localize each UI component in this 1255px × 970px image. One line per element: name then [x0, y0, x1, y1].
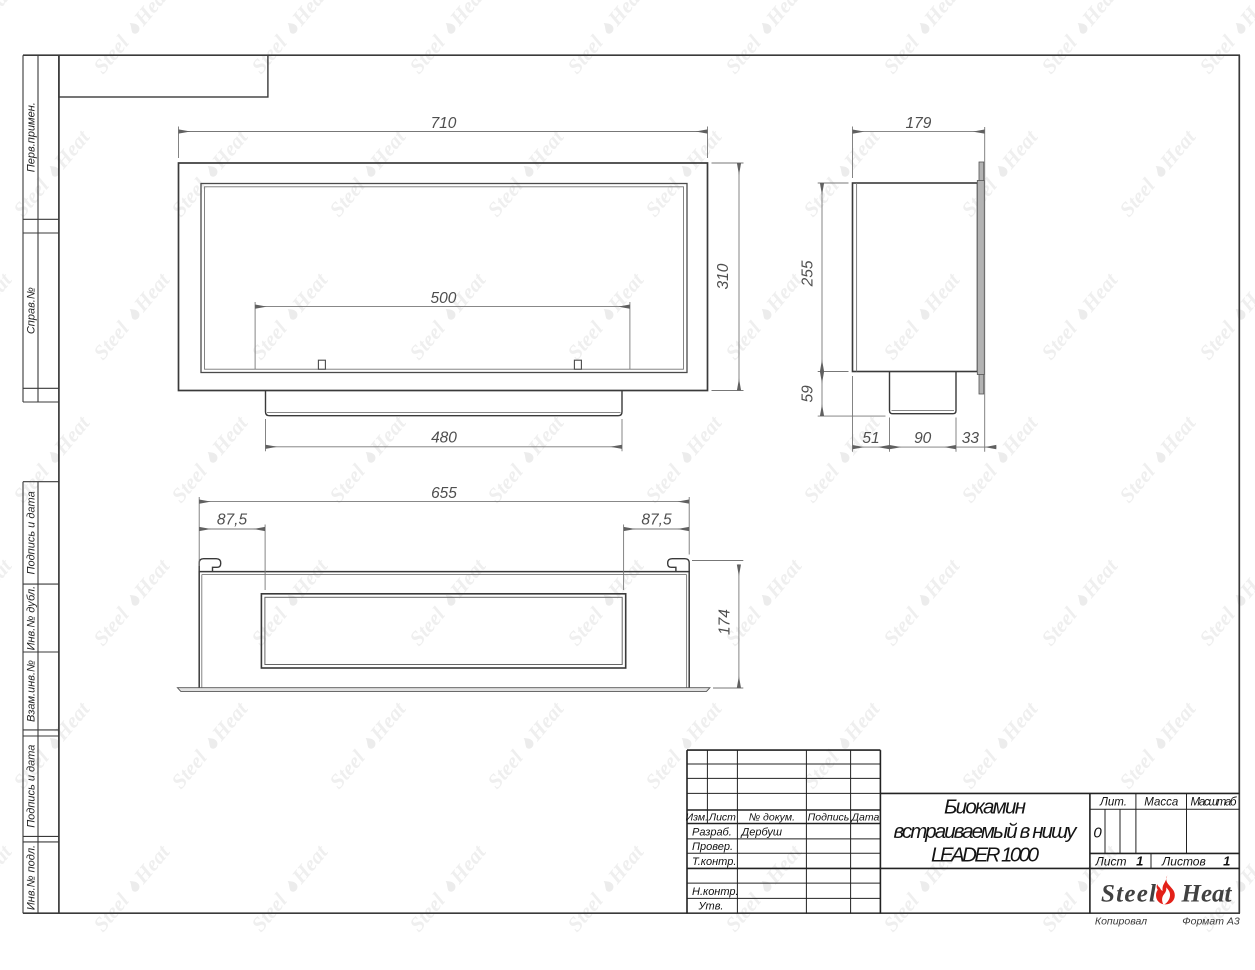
svg-text:87,5: 87,5	[641, 512, 672, 529]
svg-text:Heat: Heat	[1181, 881, 1233, 908]
svg-text:Дата: Дата	[851, 812, 880, 824]
svg-text:59: 59	[800, 385, 817, 403]
svg-text:Лист: Лист	[1095, 854, 1127, 868]
svg-text:Изм.: Изм.	[686, 812, 708, 824]
svg-text:Листов: Листов	[1161, 854, 1206, 868]
svg-text:Биокамин: Биокамин	[944, 796, 1026, 819]
svg-text:1: 1	[1223, 854, 1230, 869]
svg-text:Масса: Масса	[1144, 797, 1178, 809]
svg-text:255: 255	[800, 260, 817, 287]
svg-text:Подпись и дата: Подпись и дата	[26, 745, 38, 828]
svg-text:Подпись: Подпись	[808, 812, 850, 824]
svg-text:Перв.примен.: Перв.примен.	[26, 102, 38, 172]
svg-text:Н.контр.: Н.контр.	[692, 886, 739, 898]
svg-text:Формат А3: Формат А3	[1182, 916, 1240, 928]
svg-text:Лит.: Лит.	[1099, 797, 1127, 809]
svg-text:Масштаб: Масштаб	[1191, 797, 1238, 809]
svg-text:Провер.: Провер.	[692, 841, 733, 853]
svg-text:500: 500	[430, 290, 456, 307]
svg-text:174: 174	[717, 609, 734, 635]
svg-text:Утв.: Утв.	[698, 901, 724, 913]
svg-text:Подпись и дата: Подпись и дата	[26, 491, 38, 574]
svg-text:Инв.№ дубл.: Инв.№ дубл.	[26, 586, 38, 651]
svg-text:Дербуш: Дербуш	[740, 827, 783, 839]
svg-text:90: 90	[914, 430, 932, 447]
svg-text:Steel: Steel	[1101, 881, 1156, 908]
svg-text:Разраб.: Разраб.	[692, 827, 732, 839]
svg-text:710: 710	[431, 115, 457, 132]
svg-text:655: 655	[431, 485, 457, 502]
svg-text:Лист: Лист	[708, 812, 736, 824]
svg-text:№ докум.: № докум.	[749, 812, 795, 824]
svg-text:Инв.№ подл.: Инв.№ подл.	[26, 845, 38, 910]
svg-text:0: 0	[1093, 825, 1102, 842]
svg-text:Копировал: Копировал	[1095, 916, 1147, 928]
svg-text:87,5: 87,5	[217, 512, 248, 529]
svg-text:Т.контр.: Т.контр.	[692, 856, 736, 868]
svg-text:встраиваемый в нишу: встраиваемый в нишу	[894, 820, 1079, 843]
svg-text:51: 51	[862, 430, 879, 447]
svg-text:Взам.инв.№: Взам.инв.№	[26, 660, 38, 722]
svg-text:1: 1	[1136, 854, 1143, 869]
svg-text:310: 310	[715, 263, 732, 289]
svg-text:480: 480	[431, 430, 457, 447]
svg-text:LEADER 1000: LEADER 1000	[931, 844, 1040, 867]
svg-text:179: 179	[905, 115, 931, 132]
svg-text:Справ.№: Справ.№	[26, 287, 38, 334]
svg-text:33: 33	[962, 430, 980, 447]
